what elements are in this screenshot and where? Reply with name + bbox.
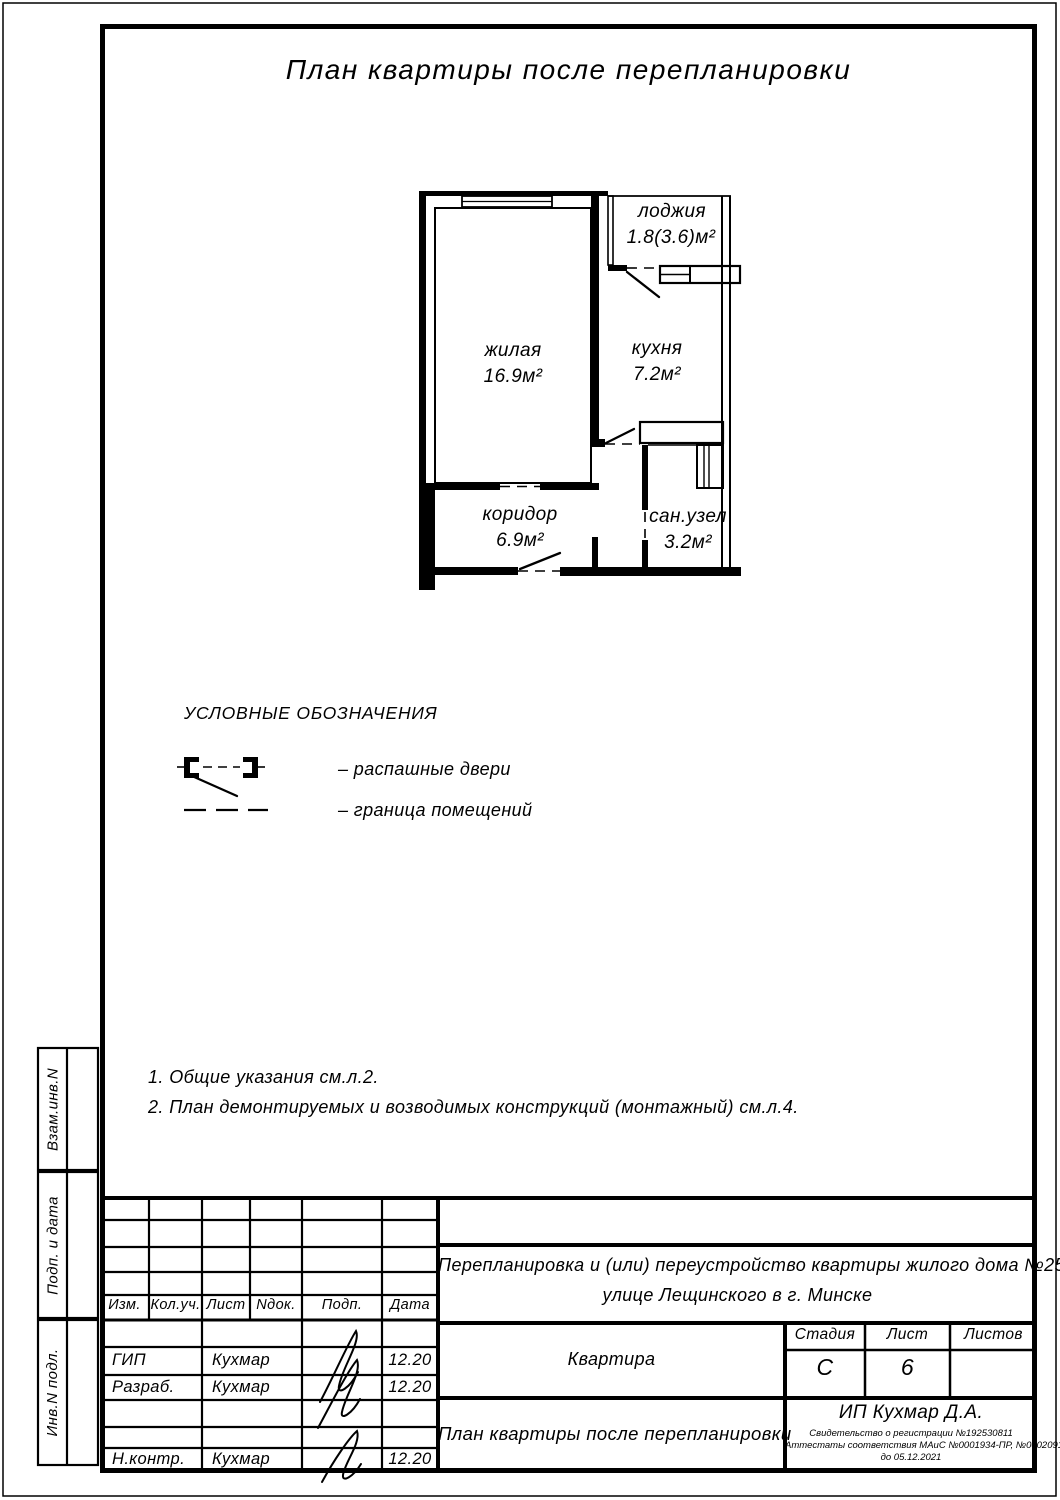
- legend-doors-label: – распашные двери: [338, 759, 511, 780]
- tb-col-data: Дата: [382, 1297, 438, 1314]
- room-corridor-name: коридор: [440, 504, 600, 526]
- tb-razrab-name: Кухмар: [212, 1378, 270, 1397]
- tb-sheets-label: Листов: [950, 1326, 1037, 1344]
- legend-boundary-label: – граница помещений: [338, 800, 532, 821]
- tb-cert-line1: Свидетельство о регистрации №192530811: [785, 1429, 1037, 1440]
- room-bathroom-area: 3.2м²: [608, 532, 768, 554]
- drawing-frame: [103, 27, 1035, 1471]
- room-bathroom-name: сан.узел: [608, 506, 768, 528]
- tb-col-podp: Подп.: [302, 1297, 382, 1314]
- tb-project-line1: Перепланировка и (или) переустройство кв…: [438, 1255, 1037, 1276]
- tb-nkontr-date: 12.20: [382, 1450, 438, 1469]
- tb-object: Квартира: [438, 1349, 785, 1370]
- room-loggia-name: лоджия: [592, 201, 752, 223]
- tb-col-ndok: Nдок.: [250, 1297, 302, 1314]
- tb-gip-role: ГИП: [112, 1351, 146, 1370]
- room-kitchen-area: 7.2м²: [577, 364, 737, 386]
- tb-gip-name: Кухмар: [212, 1351, 270, 1370]
- room-kitchen-name: кухня: [577, 338, 737, 360]
- legend-door-symbol: [177, 757, 265, 796]
- tb-company: ИП Кухмар Д.А.: [785, 1402, 1037, 1424]
- tb-razrab-role: Разраб.: [112, 1378, 175, 1397]
- room-living-area: 16.9м²: [433, 366, 593, 388]
- tb-col-izm: Изм.: [100, 1297, 149, 1314]
- tb-sheet-value: 6: [865, 1354, 950, 1380]
- tb-razrab-date: 12.20: [382, 1378, 438, 1397]
- tb-cert-line2: Аттестаты соответствия МАиС №0001934-ПР,…: [785, 1441, 1037, 1452]
- tb-sheet-label: Лист: [865, 1326, 950, 1344]
- tb-cert-line3: до 05.12.2021: [785, 1453, 1037, 1464]
- tb-stage-value: С: [785, 1354, 865, 1380]
- tb-project-line2: улице Лещинского в г. Минске: [438, 1285, 1037, 1306]
- margin-label-inv: Инв.N подл.: [38, 1320, 67, 1465]
- drawing-sheet: План квартиры после перепланировки жилая…: [0, 0, 1060, 1500]
- note-2: 2. План демонтируемых и возводимых конст…: [148, 1097, 799, 1118]
- margin-label-vzam: Взам.инв.N: [38, 1048, 67, 1170]
- tb-col-koluch: Кол.уч.: [149, 1297, 202, 1314]
- tb-doc-title: План квартиры после перепланировки: [438, 1423, 785, 1444]
- note-1: 1. Общие указания см.л.2.: [148, 1067, 379, 1088]
- room-corridor-area: 6.9м²: [440, 530, 600, 552]
- tb-gip-date: 12.20: [382, 1351, 438, 1370]
- room-loggia-area: 1.8(3.6)м²: [586, 227, 756, 249]
- tb-nkontr-role: Н.контр.: [112, 1450, 185, 1469]
- tb-stage-label: Стадия: [785, 1326, 865, 1344]
- tb-nkontr-name: Кухмар: [212, 1450, 270, 1469]
- legend-title: УСЛОВНЫЕ ОБОЗНАЧЕНИЯ: [184, 703, 437, 723]
- tb-col-list: Лист: [202, 1297, 250, 1314]
- room-living-name: жилая: [433, 340, 593, 362]
- sheet-title: План квартиры после перепланировки: [100, 54, 1037, 86]
- signature-scribbles: [318, 1331, 361, 1482]
- margin-label-podp: Подп. и дата: [38, 1172, 67, 1318]
